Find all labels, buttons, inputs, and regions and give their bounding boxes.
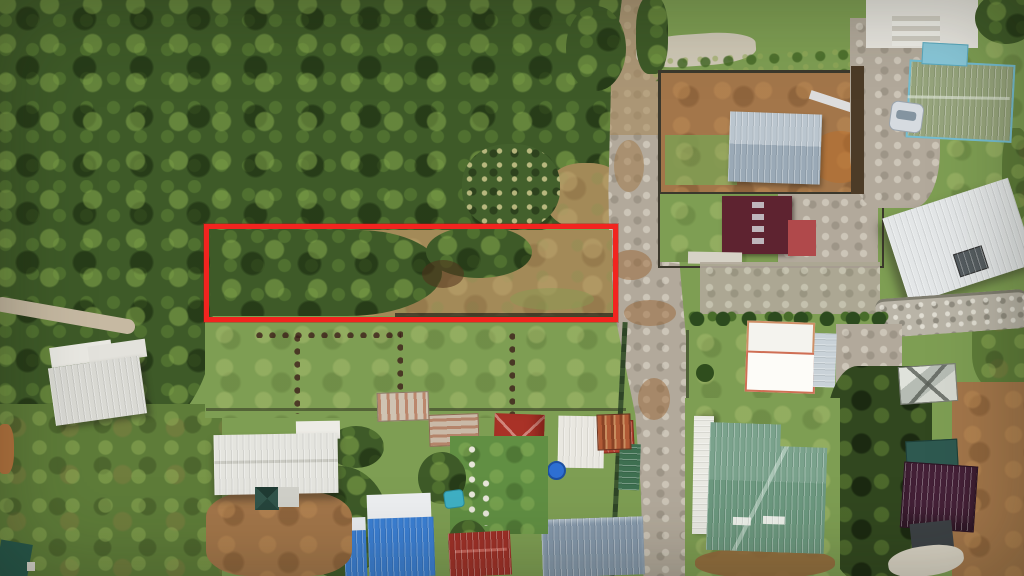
building-slate-roof xyxy=(541,516,645,576)
white-ridge-cap xyxy=(367,493,432,520)
white-roof-panel xyxy=(745,350,816,393)
road-dirt-patch xyxy=(624,300,676,326)
gazebo-pyramid-roof xyxy=(255,487,279,510)
grass-patch xyxy=(665,135,737,185)
house-annex-red-roof xyxy=(788,220,816,256)
farmhouse-white-roof xyxy=(213,433,338,495)
rusty-shed-roof xyxy=(377,391,430,422)
green-awning xyxy=(618,444,641,491)
blue-water-tank xyxy=(547,461,566,480)
rusty-roof-section xyxy=(596,413,631,450)
roof-ridge xyxy=(214,459,338,464)
palm-grove xyxy=(462,144,560,230)
sage-green-roof xyxy=(906,59,1016,142)
dirt-patch xyxy=(0,424,14,474)
roof-vents xyxy=(752,202,764,248)
white-beam xyxy=(809,90,856,113)
white-deck xyxy=(866,0,978,48)
blue-roof-section xyxy=(367,517,435,576)
gray-roof-annex xyxy=(813,333,837,388)
road-dirt-patch xyxy=(614,140,644,192)
building-left-white-roof xyxy=(34,329,155,431)
roof-skylight xyxy=(953,245,989,277)
house-crimson-roof xyxy=(448,530,512,576)
weathered-white-roof xyxy=(48,356,147,426)
teal-pool xyxy=(443,489,465,510)
car-windshield xyxy=(896,110,917,122)
patio-slab xyxy=(278,487,299,507)
scrubland xyxy=(0,404,222,576)
tree-cluster xyxy=(566,6,626,91)
roof-ridge xyxy=(455,548,507,554)
seedling-row xyxy=(253,331,401,338)
roof-skylight-strip xyxy=(733,517,751,526)
round-bush xyxy=(696,364,714,382)
aerial-photo xyxy=(0,0,1024,576)
warehouse-gray-roof xyxy=(728,111,822,184)
house-twin-white-roof xyxy=(741,318,838,393)
blue-roof-section xyxy=(921,42,968,66)
tree-cluster xyxy=(636,0,668,74)
parked-car xyxy=(888,100,925,134)
greenhouse xyxy=(898,363,959,405)
seedling-row xyxy=(293,332,300,414)
road-dirt-patch xyxy=(638,378,670,420)
stepping-stones xyxy=(466,442,480,526)
roof-skylight-strip xyxy=(763,516,785,525)
gravel-area xyxy=(700,262,880,314)
house-yard xyxy=(658,192,884,268)
stepping-stones xyxy=(480,476,492,526)
house-maroon-roof xyxy=(722,196,792,254)
retaining-wall xyxy=(851,66,864,194)
building-blue-roof xyxy=(343,492,450,576)
parcel-boundary-highlight xyxy=(204,224,618,322)
white-post xyxy=(27,562,35,571)
